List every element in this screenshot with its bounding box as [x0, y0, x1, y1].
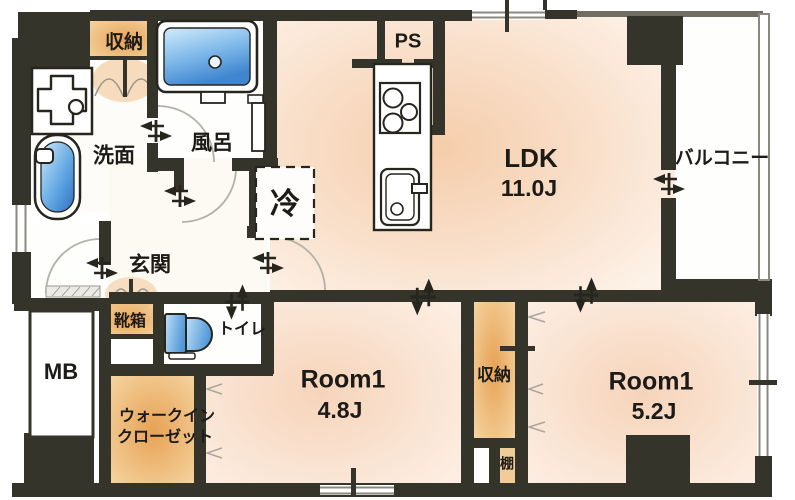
toilet-label: トイレ: [218, 321, 266, 338]
stove-icon: [380, 83, 420, 133]
room1a-size-label: 4.8J: [318, 397, 363, 423]
balcony-label: バルコニー: [675, 147, 770, 169]
entrance-label: 玄関: [129, 253, 171, 277]
washing-machine-pan-icon: [32, 68, 92, 134]
ldk-label: LDK: [504, 143, 558, 173]
balcony-rail: [759, 14, 769, 280]
shoe-box-label: 靴箱: [114, 311, 146, 330]
walkin-closet-label-2: クローゼット: [117, 427, 213, 446]
bottom-window-tick: [351, 468, 356, 497]
floor-plan-svg: 収納 洗面 風呂 PS LDK 11.0J バルコニー 冷 玄関 靴箱 トイレ …: [0, 0, 795, 500]
storage-mid-label: 収納: [477, 364, 511, 384]
kitchen-sink-icon: [381, 169, 427, 225]
room1a-label: Room1: [301, 366, 386, 394]
kitchen-counter: [374, 64, 431, 230]
pipe-space-label: PS: [395, 30, 422, 52]
right-window-tick: [749, 380, 777, 385]
top-window-tick: [505, 0, 509, 32]
ldk-size-label: 11.0J: [501, 175, 557, 201]
meter-box-label: MB: [44, 359, 78, 384]
shelf-label: 棚: [500, 456, 514, 472]
storage-top-label: 収納: [105, 30, 143, 53]
room1b-size-label: 5.2J: [632, 398, 677, 424]
refrigerator-label: 冷: [270, 188, 300, 221]
shelf-gap: [473, 448, 490, 485]
room1b-label: Room1: [609, 368, 694, 396]
walkin-closet-label-1: ウォークイン: [119, 407, 215, 425]
entrance-door-leaf-icon: [46, 286, 100, 297]
floor-plan: 収納 洗面 風呂 PS LDK 11.0J バルコニー 冷 玄関 靴箱 トイレ …: [0, 0, 795, 500]
wash-basin-icon: [35, 135, 80, 219]
ldk-floor: [270, 16, 675, 292]
bath-label: 風呂: [191, 132, 233, 155]
washroom-label: 洗面: [93, 145, 135, 168]
